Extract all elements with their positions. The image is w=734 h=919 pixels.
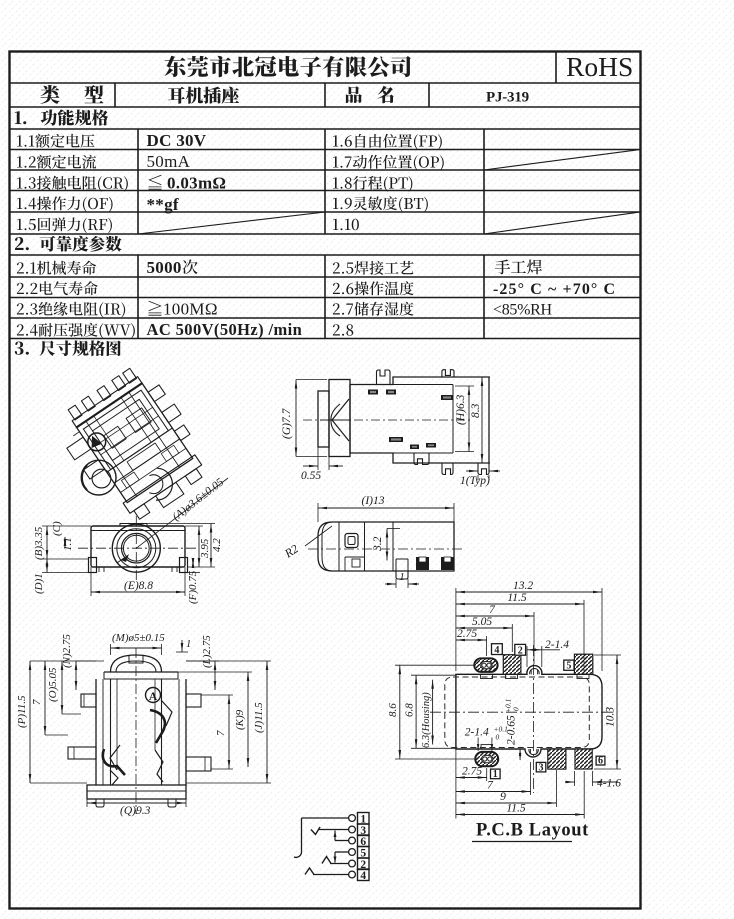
svg-text:(O)5.05: (O)5.05 [47, 667, 59, 702]
svg-text:1(Typ): 1(Typ) [460, 475, 490, 487]
svg-text:DC 30V: DC 30V [147, 131, 207, 150]
svg-text:RoHS: RoHS [566, 51, 633, 82]
svg-text:3.2: 3.2 [372, 536, 384, 552]
svg-text:7: 7 [31, 699, 43, 705]
svg-text:100MΩ: 100MΩ [163, 300, 218, 319]
svg-text:-25° C ~ +70° C: -25° C ~ +70° C [493, 281, 616, 298]
svg-text:0.03mΩ: 0.03mΩ [167, 174, 226, 193]
svg-text:2-0.65: 2-0.65 [506, 715, 518, 745]
svg-text:1: 1 [399, 571, 405, 583]
svg-text:3: 3 [539, 762, 544, 773]
svg-text:8.6: 8.6 [387, 703, 399, 717]
svg-text:11.5: 11.5 [507, 592, 527, 604]
svg-text:4-1.6: 4-1.6 [597, 778, 621, 790]
svg-text:(M)ø5±0.15: (M)ø5±0.15 [112, 632, 165, 644]
svg-text:13.2: 13.2 [513, 580, 533, 592]
svg-text:5.05: 5.05 [472, 616, 492, 628]
svg-text:AC 500V(50Hz) /min: AC 500V(50Hz) /min [147, 320, 303, 339]
svg-text:(C): (C) [51, 521, 63, 536]
svg-text:0: 0 [512, 707, 521, 711]
svg-text:2-1.4: 2-1.4 [465, 727, 489, 739]
svg-text:0: 0 [496, 733, 500, 742]
svg-text:6: 6 [598, 755, 603, 766]
svg-text:7: 7 [215, 730, 227, 736]
svg-text:4: 4 [494, 645, 499, 656]
svg-text:5: 5 [566, 661, 571, 672]
svg-text:(N)2.75: (N)2.75 [61, 634, 73, 668]
svg-text:(E)8.8: (E)8.8 [124, 580, 153, 592]
svg-text:1.1: 1.1 [62, 537, 74, 551]
svg-text:3.95: 3.95 [199, 538, 211, 559]
svg-text:**gf: **gf [147, 195, 179, 214]
svg-text:2.75: 2.75 [462, 766, 482, 778]
svg-text:2-1.4: 2-1.4 [545, 639, 569, 651]
svg-text:5000: 5000 [147, 258, 182, 277]
svg-text:1: 1 [493, 769, 498, 780]
svg-text:0.55: 0.55 [301, 470, 321, 482]
svg-text:(L)2.75: (L)2.75 [201, 635, 213, 668]
svg-text:(P)11.5: (P)11.5 [16, 695, 28, 728]
svg-text:(D)1: (D)1 [33, 573, 45, 594]
svg-text:10.3: 10.3 [605, 707, 617, 727]
svg-text:(H)6.3: (H)6.3 [455, 394, 467, 425]
svg-text:(B)3.35: (B)3.35 [33, 526, 45, 560]
svg-text:A: A [149, 691, 158, 703]
svg-text:P.C.B Layout: P.C.B Layout [476, 821, 589, 841]
svg-text:11.5: 11.5 [506, 803, 526, 815]
svg-text:(I)13: (I)13 [362, 495, 385, 507]
svg-text:(F)0.75: (F)0.75 [187, 570, 199, 604]
svg-text:9: 9 [500, 791, 506, 803]
svg-text:2.75: 2.75 [457, 628, 477, 640]
svg-text:1: 1 [186, 639, 191, 650]
svg-text:(Q)9.3: (Q)9.3 [120, 805, 151, 817]
svg-text:4: 4 [360, 870, 366, 882]
svg-text:(K)9: (K)9 [234, 709, 246, 730]
svg-text:(J)11.5: (J)11.5 [253, 702, 265, 733]
svg-text:50mA: 50mA [147, 152, 191, 171]
svg-text:PJ-319: PJ-319 [486, 90, 529, 106]
svg-text:4.2: 4.2 [211, 538, 223, 552]
svg-text:8.3: 8.3 [470, 403, 482, 418]
svg-text:6.8: 6.8 [404, 703, 416, 717]
svg-text:(G)7.7: (G)7.7 [281, 407, 293, 439]
svg-text:2: 2 [518, 646, 523, 657]
svg-text:<85%RH: <85%RH [493, 302, 553, 319]
svg-text:6.3(Housing): 6.3(Housing) [421, 692, 432, 748]
